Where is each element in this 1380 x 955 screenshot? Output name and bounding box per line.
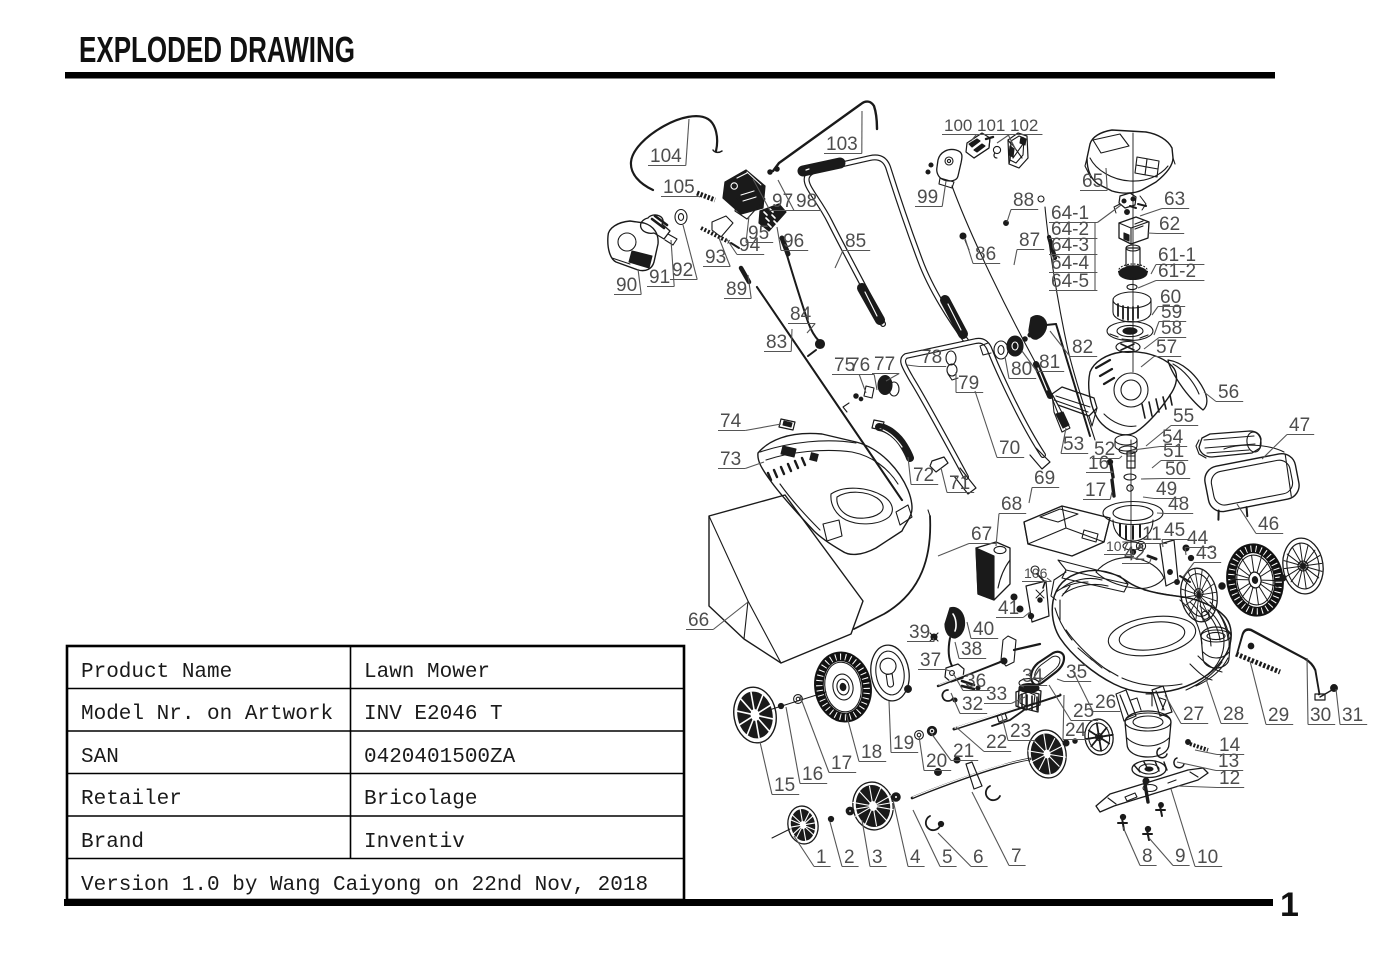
svg-text:100: 100	[944, 116, 972, 135]
svg-text:39: 39	[909, 622, 930, 643]
svg-text:28: 28	[1223, 704, 1244, 725]
svg-text:43: 43	[1196, 543, 1217, 564]
svg-text:84: 84	[790, 304, 812, 325]
svg-text:106: 106	[1024, 565, 1048, 581]
svg-text:60: 60	[1160, 287, 1181, 308]
svg-text:Version 1.0 by Wang Caiyong on: Version 1.0 by Wang Caiyong on 22nd Nov,…	[81, 874, 648, 897]
svg-text:61-2: 61-2	[1158, 261, 1196, 282]
svg-text:66: 66	[688, 610, 709, 631]
svg-text:105: 105	[663, 177, 695, 198]
svg-text:Product Name: Product Name	[81, 661, 232, 684]
svg-text:93: 93	[705, 247, 726, 268]
svg-text:26: 26	[1095, 692, 1116, 713]
svg-text:102: 102	[1010, 116, 1038, 135]
svg-text:83: 83	[766, 332, 787, 353]
svg-text:9: 9	[1175, 846, 1186, 867]
svg-text:Lawn Mower: Lawn Mower	[364, 661, 490, 684]
svg-text:107: 107	[1106, 538, 1130, 554]
svg-text:Retailer: Retailer	[81, 788, 182, 811]
svg-text:22: 22	[986, 732, 1007, 753]
svg-text:16: 16	[802, 764, 823, 785]
svg-text:SAN: SAN	[81, 746, 119, 769]
svg-text:79: 79	[958, 373, 979, 394]
svg-text:81: 81	[1039, 352, 1060, 373]
svg-text:85: 85	[845, 231, 866, 252]
svg-text:1: 1	[1280, 886, 1299, 924]
svg-text:73: 73	[720, 449, 741, 470]
svg-text:69: 69	[1034, 468, 1055, 489]
svg-text:EXPLODED DRAWING: EXPLODED DRAWING	[79, 29, 355, 70]
svg-text:15: 15	[774, 775, 795, 796]
svg-text:91: 91	[649, 267, 670, 288]
svg-text:25: 25	[1073, 701, 1094, 722]
svg-text:89: 89	[726, 279, 747, 300]
svg-text:41: 41	[998, 598, 1019, 619]
svg-text:101: 101	[977, 116, 1005, 135]
svg-text:50: 50	[1165, 459, 1186, 480]
svg-text:1: 1	[816, 847, 827, 868]
svg-text:77: 77	[874, 354, 895, 375]
svg-text:6: 6	[973, 847, 984, 868]
svg-text:71: 71	[949, 473, 970, 494]
svg-text:30: 30	[1310, 705, 1331, 726]
svg-text:78: 78	[921, 347, 942, 368]
svg-text:82: 82	[1072, 337, 1093, 358]
svg-text:64-5: 64-5	[1051, 271, 1089, 292]
svg-text:17: 17	[1085, 480, 1106, 501]
svg-text:4: 4	[910, 847, 921, 868]
svg-text:21: 21	[953, 741, 974, 762]
svg-text:17: 17	[831, 753, 852, 774]
svg-text:3: 3	[872, 847, 883, 868]
svg-text:65: 65	[1082, 171, 1103, 192]
svg-text:0420401500ZA: 0420401500ZA	[364, 746, 516, 769]
svg-text:Inventiv: Inventiv	[364, 831, 465, 854]
svg-text:74: 74	[720, 411, 742, 432]
svg-text:49: 49	[1156, 479, 1177, 500]
svg-text:103: 103	[826, 134, 858, 155]
svg-text:29: 29	[1268, 705, 1289, 726]
svg-text:27: 27	[1183, 704, 1204, 725]
svg-text:2: 2	[844, 847, 855, 868]
svg-text:72: 72	[913, 465, 934, 486]
svg-text:Bricolage: Bricolage	[364, 788, 477, 811]
svg-text:14: 14	[1219, 735, 1241, 756]
svg-text:92: 92	[672, 260, 693, 281]
svg-text:24: 24	[1065, 720, 1087, 741]
svg-text:10: 10	[1197, 847, 1218, 868]
svg-text:80: 80	[1011, 359, 1032, 380]
svg-text:90: 90	[616, 275, 637, 296]
svg-text:20: 20	[926, 751, 947, 772]
svg-text:98: 98	[796, 191, 817, 212]
svg-text:63: 63	[1164, 189, 1185, 210]
svg-text:97: 97	[772, 191, 793, 212]
svg-text:57: 57	[1156, 337, 1177, 358]
svg-text:104: 104	[650, 146, 682, 167]
svg-text:99: 99	[917, 187, 938, 208]
svg-text:45: 45	[1164, 520, 1185, 541]
svg-text:8: 8	[1142, 846, 1153, 867]
svg-text:33: 33	[986, 684, 1007, 705]
svg-text:38: 38	[961, 639, 982, 660]
svg-text:70: 70	[999, 438, 1020, 459]
svg-text:23: 23	[1010, 721, 1031, 742]
svg-text:53: 53	[1063, 434, 1084, 455]
svg-text:35: 35	[1066, 662, 1087, 683]
svg-text:19: 19	[893, 733, 914, 754]
svg-text:67: 67	[971, 524, 992, 545]
svg-text:32: 32	[962, 694, 983, 715]
svg-text:37: 37	[920, 650, 941, 671]
svg-text:Model Nr. on Artwork: Model Nr. on Artwork	[81, 703, 333, 726]
svg-text:68: 68	[1001, 494, 1022, 515]
svg-text:11: 11	[1142, 524, 1162, 545]
svg-text:5: 5	[942, 847, 953, 868]
svg-text:7: 7	[1011, 846, 1022, 867]
svg-text:56: 56	[1218, 382, 1239, 403]
svg-text:88: 88	[1013, 190, 1034, 211]
svg-text:95: 95	[748, 223, 769, 244]
svg-text:Brand: Brand	[81, 831, 144, 854]
svg-text:31: 31	[1342, 705, 1363, 726]
svg-text:96: 96	[783, 231, 804, 252]
svg-text:16: 16	[1088, 453, 1109, 474]
svg-text:36: 36	[965, 671, 986, 692]
svg-text:INV E2046 T: INV E2046 T	[364, 703, 503, 726]
svg-text:55: 55	[1173, 406, 1194, 427]
svg-text:47: 47	[1289, 415, 1310, 436]
svg-text:87: 87	[1019, 230, 1040, 251]
svg-text:40: 40	[973, 619, 994, 640]
svg-text:18: 18	[861, 742, 882, 763]
svg-text:76: 76	[849, 355, 870, 376]
svg-text:46: 46	[1258, 514, 1279, 535]
svg-text:62: 62	[1159, 214, 1180, 235]
svg-text:34: 34	[1022, 666, 1044, 687]
svg-text:86: 86	[975, 244, 996, 265]
